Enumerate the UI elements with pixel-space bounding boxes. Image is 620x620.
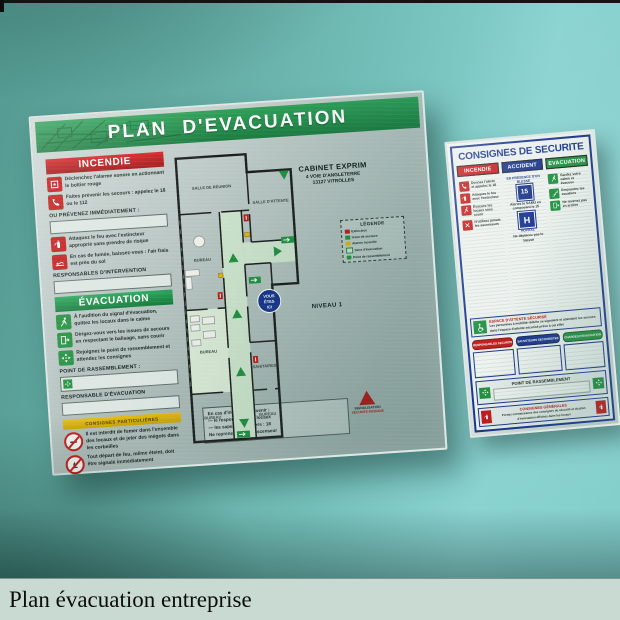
page: PLAN D'EVACUATION INCENDIE Déclenchez l'…: [0, 0, 620, 620]
room-label: SALLE DE RÉUNION: [192, 183, 232, 191]
top-edge-strip: [0, 0, 620, 3]
exit-door-icon: [57, 332, 73, 348]
exit-sign-icon: [345, 235, 350, 240]
alarm-icon: [345, 241, 350, 246]
names-field: [563, 341, 605, 370]
triangle-logo-icon: [358, 390, 375, 405]
plan-title-band: PLAN D'EVACUATION: [35, 97, 420, 153]
extinguisher-icon: [345, 229, 350, 234]
level-label: NIVEAU 1: [312, 302, 343, 310]
names-field: [517, 345, 562, 375]
extinguisher-icon: [595, 400, 606, 414]
corner-sliver: [0, 0, 4, 12]
room-label: SALLE D'ATTENTE: [252, 197, 289, 204]
safety-sign-frame: CONSIGNES DE SECURITE INCENDIE Donnez l'…: [450, 134, 615, 432]
evacuation-path-icon: [346, 247, 353, 254]
caption-bar: Plan évacuation entreprise: [0, 578, 620, 620]
instructions-column: INCENDIE Déclenchez l'alarme sonore en a…: [45, 152, 184, 478]
assembly-point-icon: [346, 255, 351, 260]
assembly-point-icon: [592, 377, 604, 389]
exit-man-icon: [56, 314, 72, 330]
names-field: [473, 349, 516, 379]
evacuation-plan-sign: PLAN D'EVACUATION INCENDIE Déclenchez l'…: [29, 90, 448, 475]
no-elevator-icon: [462, 220, 473, 231]
assembly-point-icon: [63, 379, 73, 389]
safety-instructions-sign: CONSIGNES DE SECURITE INCENDIE Donnez l'…: [444, 129, 620, 438]
wall-photo: PLAN D'EVACUATION INCENDIE Déclenchez l'…: [0, 0, 620, 578]
stairs-icon: [549, 188, 560, 199]
exit-man-icon: [461, 205, 472, 216]
prohibition-item: Tout départ de feu, même éteint, doit êt…: [65, 448, 184, 475]
room-label: SANITAIRES: [252, 363, 277, 370]
caption-text: Plan évacuation entreprise: [0, 587, 252, 613]
room-label: BUREAU: [204, 414, 222, 420]
fire-alarm-icon: [47, 176, 63, 192]
extinguisher-icon: [460, 193, 471, 204]
wheelchair-icon: [473, 320, 487, 334]
floor-plan: VOUS ÊTES ICI SALLE DE RÉUNION SALLE D'A…: [163, 142, 325, 455]
assembly-point-icon: [58, 350, 74, 366]
no-smoking-icon: [64, 432, 84, 452]
column-evacuation: EVACUATION Gardez votre calme et évacuez…: [545, 155, 600, 308]
smoke-crawl-icon: [52, 254, 68, 270]
exit-door-icon: [550, 200, 561, 211]
extinguisher-icon: [51, 236, 67, 252]
plan-title: PLAN D'EVACUATION: [107, 106, 348, 144]
phone-icon: [48, 194, 64, 210]
samu-15-badge: 15: [516, 183, 533, 200]
room-label: BUREAU: [194, 257, 212, 263]
safety-columns: INCENDIE Donnez l'alerte et appelez le 1…: [456, 155, 600, 316]
extinguisher-icon: [481, 410, 492, 424]
exit-man-icon: [548, 173, 559, 184]
no-open-flame-icon: [65, 455, 85, 475]
you-are-here-marker: VOUS ÊTES ICI: [257, 289, 281, 313]
svg-text:ICI: ICI: [267, 304, 272, 309]
maker-logo: SIGNALISATION SÉCURITÉ INCENDIE: [349, 390, 384, 415]
hospital-h-icon: H: [518, 211, 536, 229]
assembly-point-icon: [479, 387, 491, 399]
phone-icon: [459, 181, 470, 192]
legend-box: LÉGENDE Extincteur Issue de secours Alar…: [340, 216, 407, 264]
room-label: BUREAU: [259, 411, 277, 417]
